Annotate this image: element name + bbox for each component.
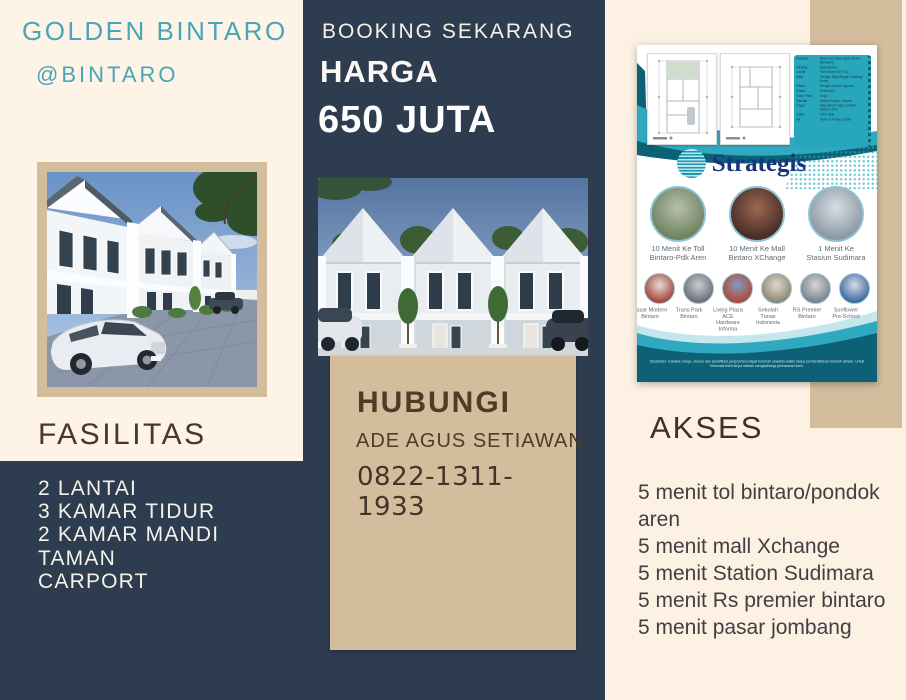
fasilitas-item: 3 KAMAR TIDUR <box>38 500 298 523</box>
spec-row: Atap Rangka Baja Ringan Genteng Beton <box>797 76 866 84</box>
landmark-caption: Sunflower Pre-School <box>828 307 864 320</box>
spec-value: Rangka Hollow Gypsum <box>820 84 866 88</box>
spec-label: Dinding <box>797 66 820 70</box>
price-value: 650 JUTA <box>318 99 496 142</box>
fasilitas-item: 2 LANTAI <box>38 477 298 500</box>
contact-card: HUBUNGI ADE AGUS SETIAWAN 0822-1311-1933 <box>330 356 576 650</box>
landmark-caption: Pasar Modern Bintaro <box>637 307 668 320</box>
floor-plan-drawing <box>647 53 717 145</box>
contact-name: ADE AGUS SETIAWAN <box>356 430 584 453</box>
spec-row: Kusen Aluminium <box>797 89 866 93</box>
house-render-perspective <box>47 172 257 387</box>
spec-value: Toren & Pompa Listrik <box>820 118 866 122</box>
spec-label: Plafon <box>797 84 820 88</box>
akses-item: 5 menit tol bintaro/pondok aren <box>638 479 904 533</box>
spec-label: Dapur <box>797 104 820 112</box>
landmark-caption: Living Plaza ACE Hardware Informa <box>710 307 746 332</box>
akses-item: 5 menit pasar jombang <box>638 614 904 641</box>
akses-item: 5 menit Station Sudimara <box>638 560 904 587</box>
location-flyer: Pondasi Batu Kali Cakar Ayam Beton Bertu… <box>637 45 877 382</box>
fasilitas-item: TAMAN <box>38 547 298 570</box>
landmark-caption: RS Premier Bintaro <box>789 307 825 320</box>
contact-heading: HUBUNGI <box>357 386 511 420</box>
contact-phone: 0822-1311-1933 <box>357 462 576 522</box>
akses-item: 5 menit mall Xchange <box>638 533 904 560</box>
landmark-caption: 1 Menit Ke Stasiun Sudimara <box>805 245 867 263</box>
landmark-photo <box>722 273 753 304</box>
spec-label: Listrik <box>797 113 820 117</box>
strategis-heading: Strategis <box>697 150 821 178</box>
akses-heading: AKSES <box>650 410 763 446</box>
center-house-photo <box>318 178 588 356</box>
fasilitas-item: CARPORT <box>38 570 298 593</box>
spec-row: Sanitair Klosed Duduk, Shower <box>797 99 866 103</box>
spec-value: Klosed Duduk, Shower <box>820 99 866 103</box>
spec-label: Lantai <box>797 71 820 75</box>
house-render-front <box>318 178 588 356</box>
landmark-caption: 10 Menit Ke Toll Bintaro-Pdk Aren <box>647 245 709 263</box>
booking-label: BOOKING SEKARANG <box>322 20 575 44</box>
spec-value: Aluminium <box>820 89 866 93</box>
spec-value: Kayu <box>820 94 866 98</box>
spec-table: Pondasi Batu Kali Cakar Ayam Beton Bertu… <box>794 55 871 147</box>
spec-table-rows: Pondasi Batu Kali Cakar Ayam Beton Bertu… <box>794 55 868 125</box>
disclaimer: Disclaimer: Gambar, harga, ukuran dan sp… <box>649 360 865 378</box>
akses-list: 5 menit tol bintaro/pondok aren5 menit m… <box>638 479 904 641</box>
spec-label: Daun Pintu <box>797 94 820 98</box>
spec-value: Batu Kali Cakar Ayam Beton Bertulang <box>820 57 866 65</box>
landmark-item: 10 Menit Ke Mall Bintaro XChange <box>726 186 788 263</box>
spec-value: 1300 Watt <box>820 113 866 117</box>
property-poster: GOLDEN BINTARO @BINTARO <box>0 0 906 700</box>
landmark-item: 10 Menit Ke Toll Bintaro-Pdk Aren <box>647 186 709 263</box>
landmark-photo <box>800 273 831 304</box>
landmark-large-list: 10 Menit Ke Toll Bintaro-Pdk Aren 10 Men… <box>637 186 877 263</box>
left-house-photo <box>37 162 267 397</box>
landmark-caption: 10 Menit Ke Mall Bintaro XChange <box>726 245 788 263</box>
spec-row: Lantai Full Granite 60 X 60 <box>797 71 866 75</box>
fasilitas-item: 2 KAMAR MANDI <box>38 523 298 546</box>
spec-label: Sanitair <box>797 99 820 103</box>
spec-value: Meja Beton Lapis Granite, Kitchen Zink <box>820 104 866 112</box>
landmark-photo <box>839 273 870 304</box>
landmark-photo <box>650 186 706 242</box>
spec-row: Daun Pintu Kayu <box>797 94 866 98</box>
floor-plan-drawing <box>720 53 790 145</box>
floor-plan-2 <box>720 53 790 145</box>
akses-item: 5 menit Rs premier bintaro <box>638 587 904 614</box>
landmark-caption: Trans Park Bintaro <box>671 307 707 320</box>
spec-row: Air Toren & Pompa Listrik <box>797 118 866 122</box>
fasilitas-heading: FASILITAS <box>38 418 207 452</box>
spec-value: Full Granite 60 X 60 <box>820 71 866 75</box>
landmark-photo <box>761 273 792 304</box>
landmark-photo <box>683 273 714 304</box>
spec-value: Bata Merah <box>820 66 866 70</box>
landmark-photo <box>808 186 864 242</box>
spec-label: Air <box>797 118 820 122</box>
project-title: GOLDEN BINTARO <box>22 16 288 47</box>
spec-label: Kusen <box>797 89 820 93</box>
spec-row: Dinding Bata Merah <box>797 66 866 70</box>
spec-row: Pondasi Batu Kali Cakar Ayam Beton Bertu… <box>797 57 866 65</box>
spec-row: Dapur Meja Beton Lapis Granite, Kitchen … <box>797 104 866 112</box>
harga-label: HARGA <box>320 54 439 90</box>
landmark-photo <box>644 273 675 304</box>
project-handle: @BINTARO <box>36 62 179 88</box>
spec-value: Rangka Baja Ringan Genteng Beton <box>820 76 866 84</box>
landmark-item: Sunflower Pre-School <box>837 273 873 358</box>
spec-label: Atap <box>797 76 820 84</box>
landmark-item: 1 Menit Ke Stasiun Sudimara <box>805 186 867 263</box>
fasilitas-list: 2 LANTAI3 KAMAR TIDUR2 KAMAR MANDITAMANC… <box>38 477 298 593</box>
landmark-photo <box>729 186 785 242</box>
landmark-small-list: Pasar Modern Bintaro Trans Park Bintaro … <box>637 273 877 358</box>
spec-row: Listrik 1300 Watt <box>797 113 866 117</box>
spec-row: Plafon Rangka Hollow Gypsum <box>797 84 866 88</box>
floor-plan-1 <box>647 53 717 145</box>
spec-label: Pondasi <box>797 57 820 65</box>
disclaimer-text: Disclaimer: Gambar, harga, ukuran dan sp… <box>649 360 865 369</box>
landmark-caption: Sekolah Tunas Indonesia <box>750 307 786 326</box>
